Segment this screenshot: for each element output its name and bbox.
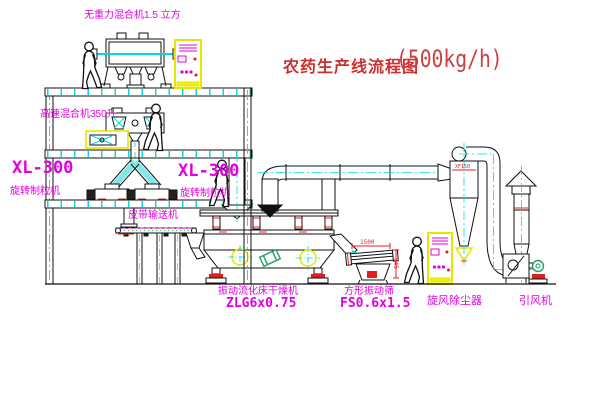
cad-flow-diagram: 无重力混合机1.5 立方 高速混合机350升 XL-300 旋转制粒机 XL-3… bbox=[0, 0, 600, 403]
label-granulator-right-model: XL-300 bbox=[178, 163, 239, 180]
cyclone-drawing bbox=[450, 143, 478, 265]
induced-draft-fan-drawing bbox=[503, 254, 547, 283]
gravity-mixer-drawing bbox=[90, 33, 180, 88]
person-figure-4 bbox=[405, 237, 424, 283]
exhaust-duct-drawing bbox=[258, 164, 452, 217]
label-high-speed-mixer: 高速混合机350升 bbox=[40, 110, 117, 120]
control-cabinet-1 bbox=[175, 40, 201, 88]
label-dryer-model: ZLG6x0.75 bbox=[226, 297, 296, 310]
dim-screen-height: 545 bbox=[392, 258, 398, 269]
page-title-capacity: (500kg/h) bbox=[396, 45, 503, 73]
granulator-right-drawing bbox=[127, 184, 177, 200]
person-figure-1 bbox=[83, 42, 102, 88]
label-screen-model: FS0.6x1.5 bbox=[340, 297, 410, 310]
label-fan: 引风机 bbox=[519, 296, 552, 307]
label-granulator-left-name: 旋转制粒机 bbox=[10, 187, 60, 197]
label-cyclone: 旋风除尘器 bbox=[427, 296, 482, 307]
dim-screen-length: 1500 bbox=[360, 240, 374, 246]
tag-cyclone-model: XF150 bbox=[455, 165, 470, 170]
label-belt-conveyor: 皮带输送机 bbox=[128, 211, 178, 221]
control-cabinet-2 bbox=[428, 233, 452, 284]
fluid-bed-dryer-drawing bbox=[200, 210, 338, 283]
label-granulator-right-name: 旋转制粒机 bbox=[180, 189, 230, 199]
label-gravity-mixer: 无重力混合机1.5 立方 bbox=[84, 11, 181, 21]
label-granulator-left-model: XL-300 bbox=[12, 160, 73, 177]
